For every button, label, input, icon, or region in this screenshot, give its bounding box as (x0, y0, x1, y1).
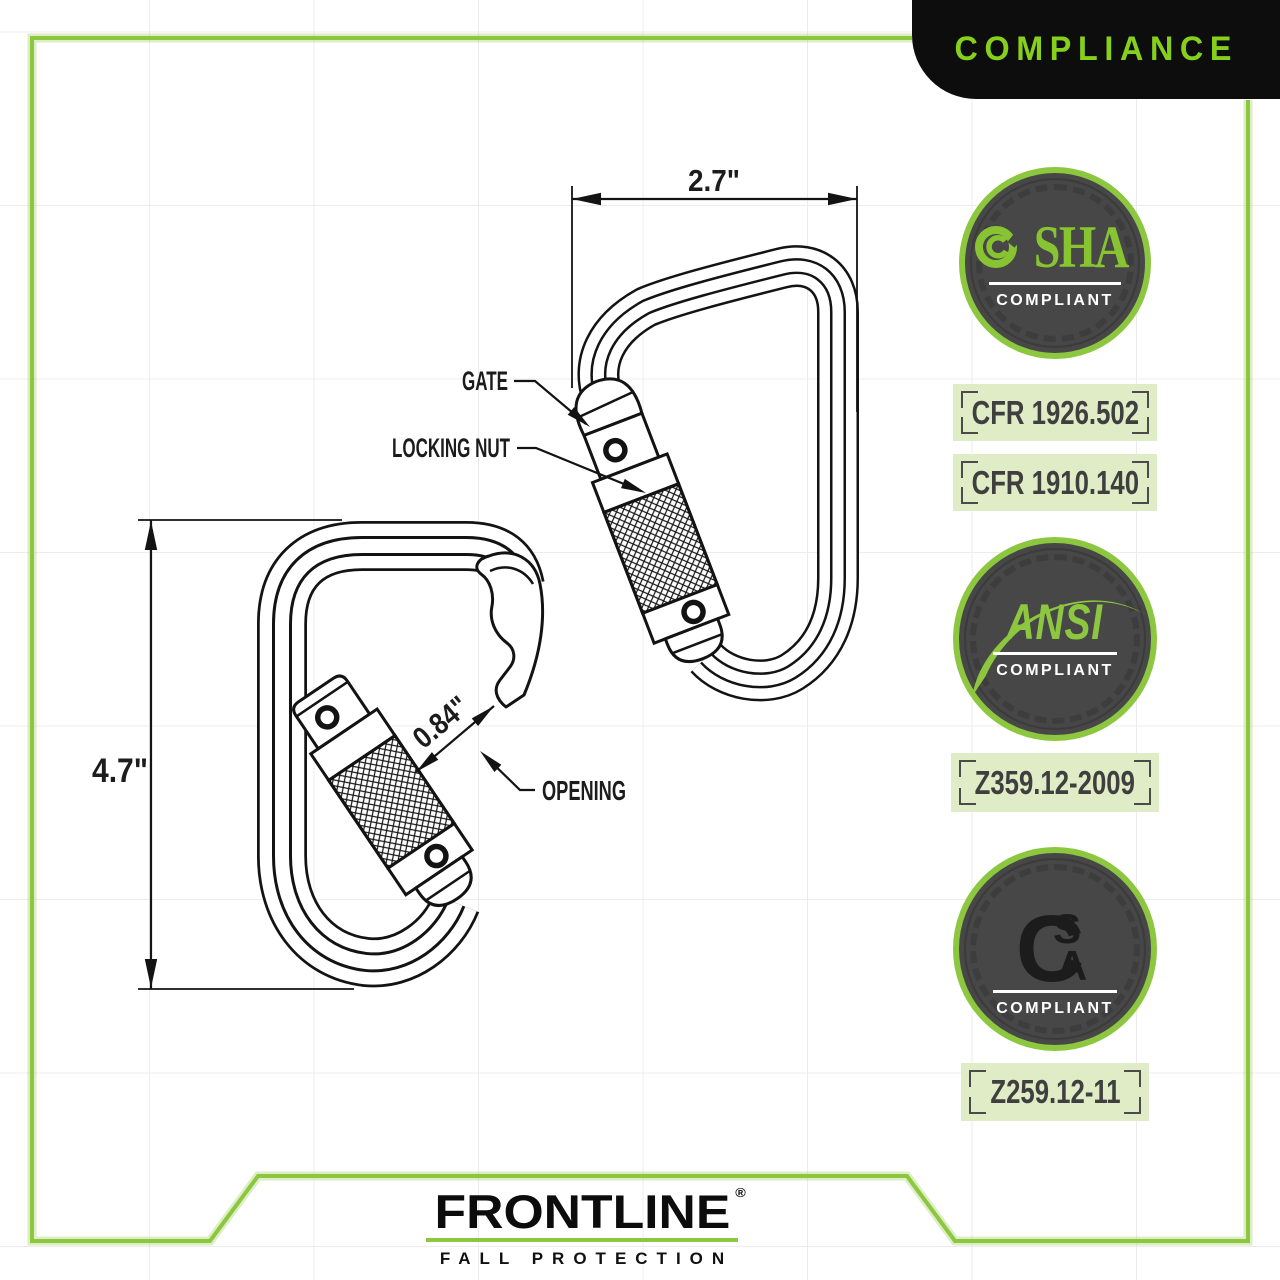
opening-label: OPENING (542, 775, 626, 806)
callout-opening: OPENING (480, 751, 626, 806)
osha-logo: SHA (971, 217, 1139, 277)
ansi-wordmark: ANSI (1007, 597, 1103, 647)
code-text: CFR 1910.140 (971, 464, 1138, 502)
corner-bracket-icon (1134, 760, 1151, 777)
dimension-height-value: 4.7" (92, 752, 148, 790)
osha-status: COMPLIANT (996, 292, 1114, 310)
arrowhead-right (828, 193, 857, 205)
gate-assembly-closed (559, 367, 740, 673)
badge-divider (989, 282, 1121, 285)
brand-tagline: FALL PROTECTION (412, 1249, 761, 1269)
ansi-status: COMPLIANT (996, 662, 1114, 680)
callout-gate: GATE (462, 366, 590, 427)
compliance-infographic: 2.7" 4.7" 0.84" GATE (0, 0, 1280, 1280)
corner-bracket-icon (1124, 1070, 1141, 1087)
brand-text: FRONTLINE (434, 1185, 730, 1238)
osha-wordmark: SHA (1034, 217, 1128, 277)
banner-title: COMPLIANCE (954, 30, 1238, 69)
footer-logo: FRONTLINE ® FALL PROTECTION (412, 1188, 752, 1269)
nose-hook (477, 553, 543, 707)
arrowhead-left (572, 193, 601, 205)
code-label-z259: Z259.12-11 (961, 1063, 1149, 1121)
gate-label: GATE (462, 366, 508, 396)
code-label-z359: Z359.12-2009 (951, 753, 1159, 812)
csa-letter-a: A (1057, 942, 1087, 985)
registered-trademark: ® (735, 1186, 746, 1199)
code-label-cfr-1926: CFR 1926.502 (953, 384, 1157, 441)
compliance-banner: COMPLIANCE (912, 0, 1280, 99)
arrowhead-down (145, 959, 157, 988)
corner-bracket-icon (959, 760, 976, 777)
badge-divider (993, 652, 1117, 655)
carabiner-open-drawing (282, 546, 543, 962)
corner-bracket-icon (1124, 1097, 1141, 1114)
code-text: Z259.12-11 (990, 1073, 1120, 1111)
arrowhead-up (145, 521, 157, 550)
brand-wordmark: FRONTLINE ® (434, 1188, 730, 1235)
ansi-compliant-badge: ANSI COMPLIANT (953, 537, 1157, 741)
dimension-opening: 0.84" (407, 690, 494, 772)
code-text: CFR 1926.502 (971, 394, 1138, 432)
brand-underline (426, 1238, 738, 1242)
csa-status: COMPLIANT (996, 1000, 1114, 1018)
badge-divider (993, 990, 1117, 993)
dimension-opening-value: 0.84" (407, 690, 476, 755)
locking-nut-label: LOCKING NUT (392, 433, 510, 463)
csa-logo: C S A (955, 881, 1155, 985)
corner-bracket-icon (969, 1070, 986, 1087)
gate-rivet (603, 438, 628, 463)
code-label-cfr-1910: CFR 1910.140 (953, 454, 1157, 511)
corner-bracket-icon (969, 1097, 986, 1114)
osha-compliant-badge: SHA COMPLIANT (959, 167, 1151, 359)
osha-swirl-icon (971, 222, 1021, 272)
corner-bracket-icon (959, 788, 976, 805)
sleeve-rivet (681, 600, 706, 625)
csa-compliant-badge: C S A COMPLIANT (953, 847, 1157, 1051)
code-text: Z359.12-2009 (975, 764, 1135, 802)
dimension-width-value: 2.7" (688, 163, 740, 198)
corner-bracket-icon (1134, 788, 1151, 805)
carabiner-closed-drawing (559, 266, 838, 680)
